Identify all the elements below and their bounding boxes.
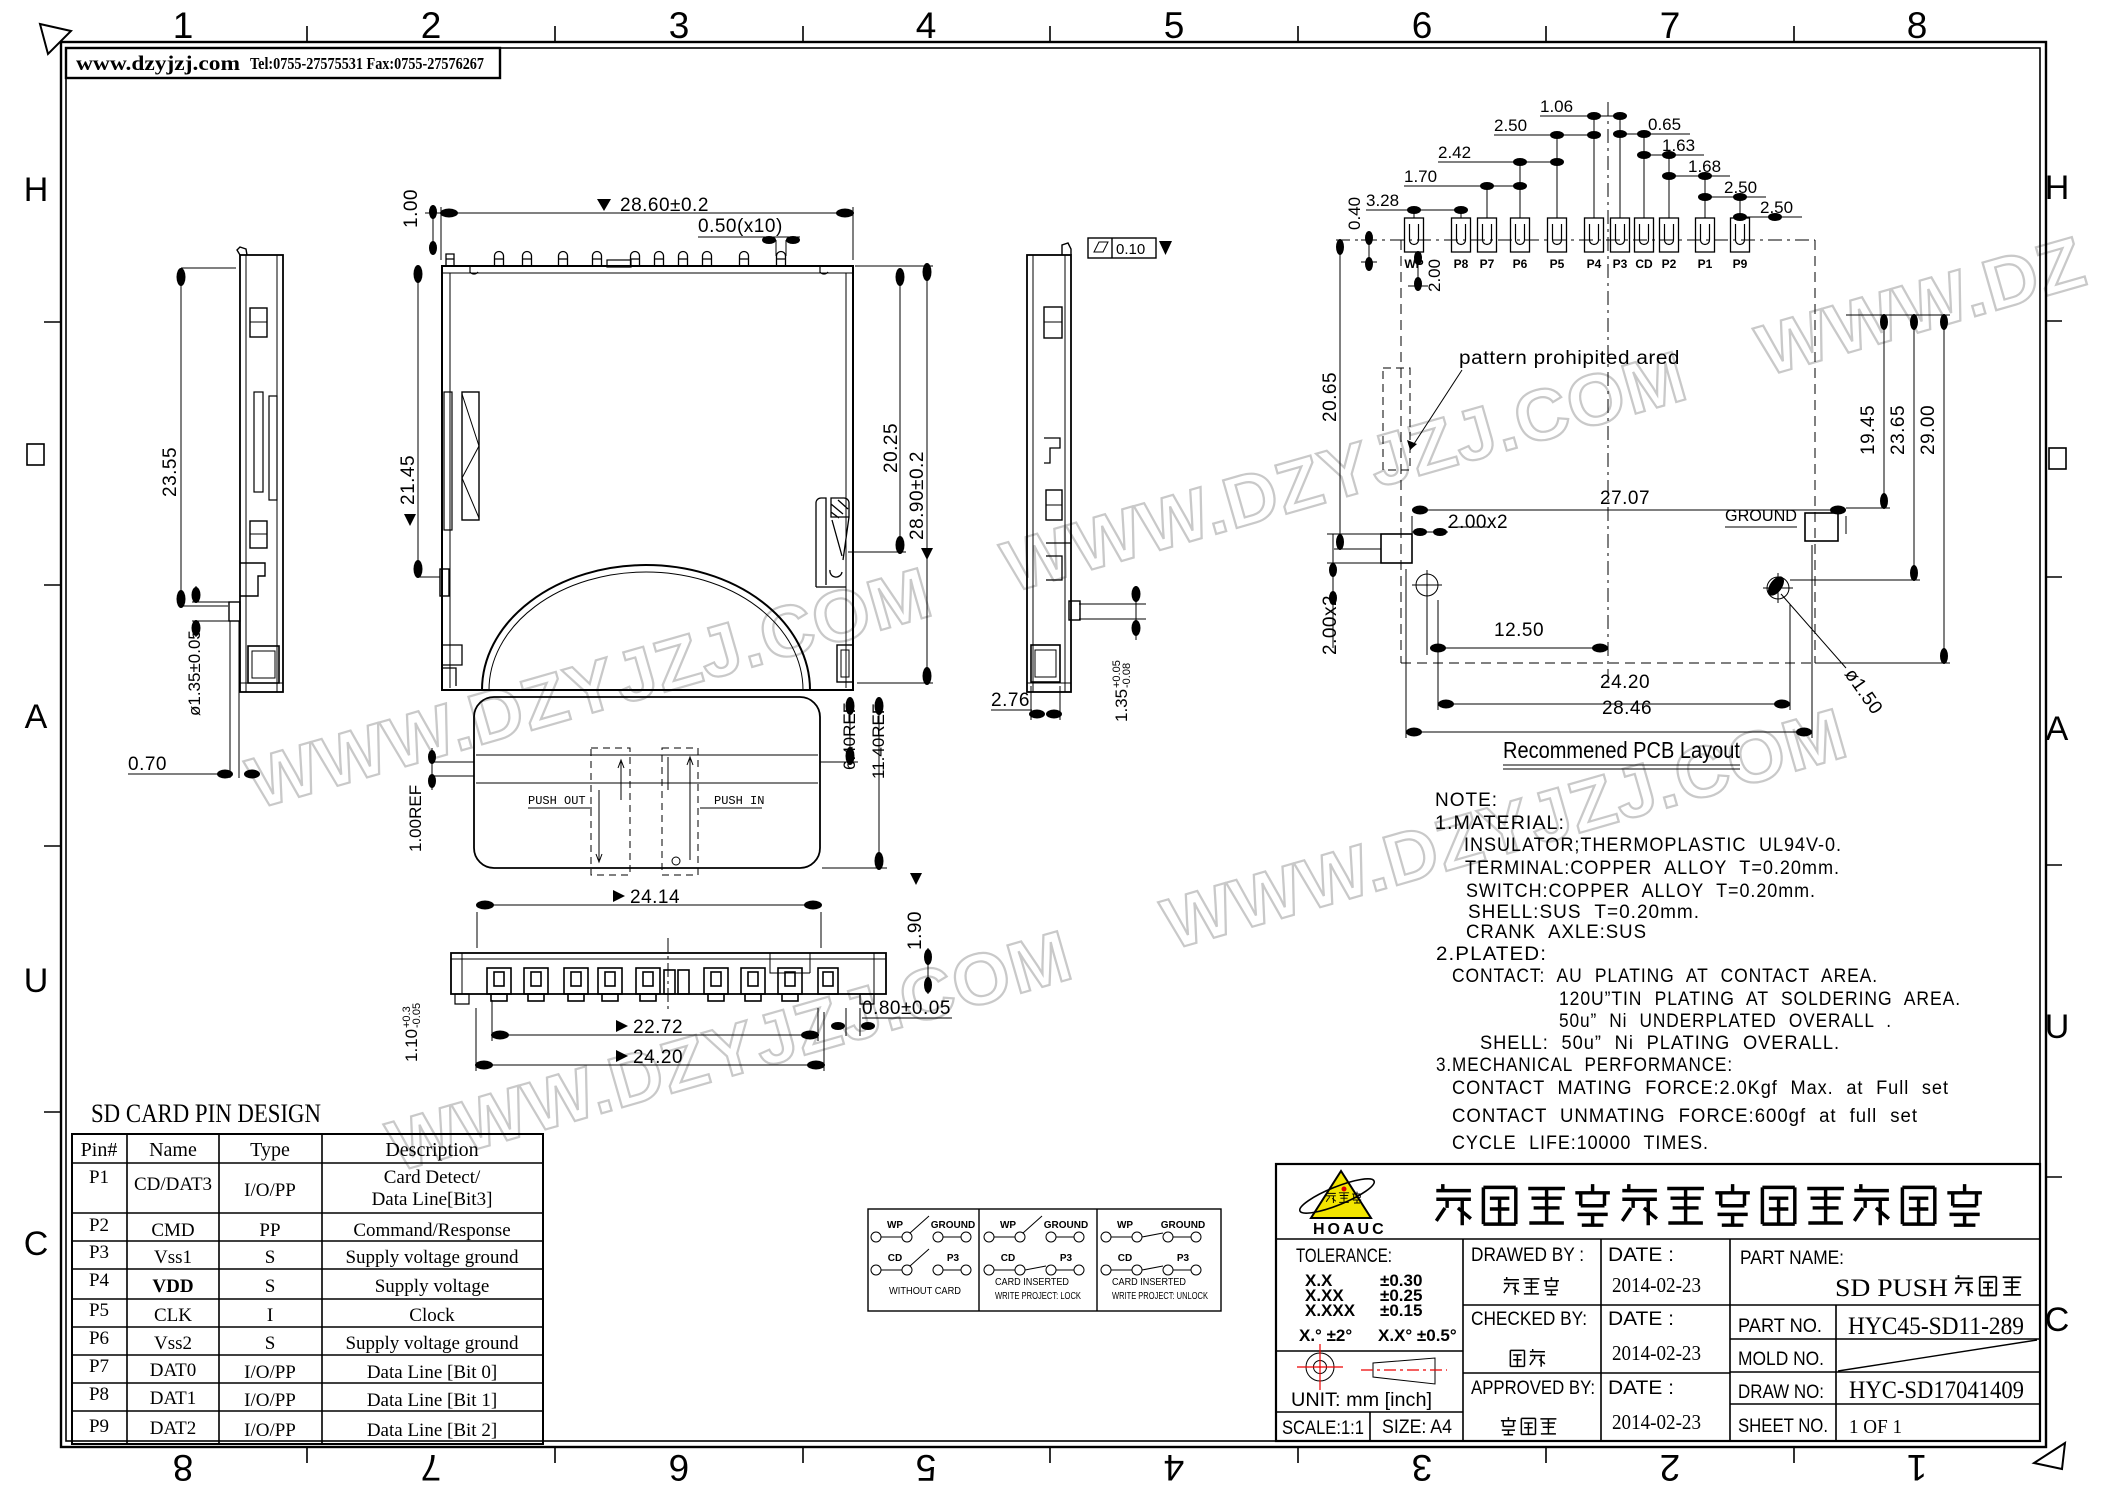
svg-text:H: H [24, 171, 49, 209]
svg-text:HYC45-SD11-289: HYC45-SD11-289 [1848, 1313, 2024, 1340]
svg-text:Data Line [Bit 2]: Data Line [Bit 2] [367, 1420, 497, 1441]
svg-text:CYCLE LIFE:10000 TIMES.: CYCLE LIFE:10000 TIMES. [1452, 1133, 1709, 1154]
svg-text:DATE :: DATE : [1608, 1309, 1674, 1330]
svg-text:Data Line[Bit3]: Data Line[Bit3] [372, 1189, 493, 1210]
svg-text:H: H [2045, 169, 2070, 207]
svg-text:Name: Name [149, 1139, 197, 1161]
svg-text:P3: P3 [1060, 1253, 1073, 1264]
svg-text:1.10: 1.10 [402, 1029, 421, 1062]
svg-text:S: S [265, 1247, 276, 1268]
svg-text:0.70: 0.70 [128, 754, 167, 775]
svg-text:SHEET NO.: SHEET NO. [1738, 1416, 1828, 1437]
svg-text:8: 8 [173, 1447, 194, 1488]
svg-text:CMD: CMD [151, 1220, 194, 1241]
svg-text:PUSH OUT: PUSH OUT [528, 794, 586, 808]
svg-text:8: 8 [1907, 5, 1928, 46]
svg-text:20.25: 20.25 [881, 423, 902, 473]
svg-text:28.46: 28.46 [1602, 698, 1652, 719]
svg-text:P3: P3 [947, 1253, 960, 1264]
svg-text:P7: P7 [1480, 257, 1495, 271]
svg-text:1: 1 [1907, 1447, 1928, 1488]
svg-text:CARD INSERTED: CARD INSERTED [995, 1276, 1069, 1288]
svg-text:P8: P8 [1454, 257, 1469, 271]
svg-text:-0.05: -0.05 [411, 1003, 423, 1028]
svg-text:Data Line [Bit 1]: Data Line [Bit 1] [367, 1390, 497, 1411]
svg-text:pattern prohipited ared: pattern prohipited ared [1459, 348, 1680, 369]
svg-text:-0.08: -0.08 [1121, 663, 1133, 688]
svg-text:X.° ±2°: X.° ±2° [1299, 1326, 1352, 1345]
svg-text:CLK: CLK [154, 1305, 192, 1326]
svg-text:CONTACT: AU PLATING AT CON: CONTACT: AU PLATING AT CONTACT AREA. [1452, 966, 1878, 987]
svg-text:P3: P3 [89, 1242, 109, 1263]
svg-text:C: C [24, 1225, 49, 1263]
svg-text:1.06: 1.06 [1540, 97, 1573, 116]
svg-text:MOLD NO.: MOLD NO. [1738, 1349, 1824, 1370]
svg-text:SCALE:1:1: SCALE:1:1 [1282, 1418, 1364, 1439]
svg-text:I/O/PP: I/O/PP [244, 1362, 296, 1383]
svg-text:2: 2 [421, 5, 442, 46]
svg-text:P1: P1 [89, 1167, 109, 1188]
svg-text:Data Line [Bit 0]: Data Line [Bit 0] [367, 1362, 497, 1383]
svg-text:CD: CD [1118, 1253, 1132, 1264]
svg-text:GROUND: GROUND [1044, 1220, 1088, 1231]
svg-text:SHELL: 50u” Ni PLATING O: SHELL: 50u” Ni PLATING OVERALL. [1480, 1033, 1840, 1054]
svg-text:7: 7 [421, 1447, 442, 1488]
svg-text:P2: P2 [89, 1215, 109, 1236]
svg-text:2014-02-23: 2014-02-23 [1612, 1410, 1701, 1434]
svg-text:3: 3 [669, 5, 690, 46]
svg-text:PART NO.: PART NO. [1738, 1316, 1822, 1337]
svg-text:2.76: 2.76 [991, 690, 1030, 711]
svg-text:2.00x2: 2.00x2 [1448, 512, 1508, 533]
svg-text:A: A [2046, 710, 2069, 748]
svg-text:NOTE:: NOTE: [1435, 790, 1498, 811]
svg-text:WRITE PROJECT: UNLOCK: WRITE PROJECT: UNLOCK [1112, 1290, 1208, 1302]
svg-text:HYC-SD17041409: HYC-SD17041409 [1849, 1377, 2024, 1404]
svg-text:I/O/PP: I/O/PP [244, 1390, 296, 1411]
svg-text:P5: P5 [1550, 257, 1565, 271]
svg-text:HOAUC: HOAUC [1313, 1221, 1387, 1238]
svg-text:C: C [2045, 1301, 2070, 1339]
svg-text:5: 5 [1164, 5, 1185, 46]
svg-text:WP: WP [887, 1220, 903, 1231]
svg-text:6.40REF: 6.40REF [840, 703, 859, 770]
svg-text:U: U [24, 962, 49, 1000]
svg-text:DRAW NO:: DRAW NO: [1738, 1382, 1824, 1403]
svg-text:4: 4 [916, 5, 937, 46]
svg-text:DRAWED BY :: DRAWED BY : [1471, 1245, 1584, 1266]
svg-text:2014-02-23: 2014-02-23 [1612, 1341, 1701, 1365]
svg-text:ø1.35±0.05: ø1.35±0.05 [185, 630, 204, 716]
svg-text:SD CARD PIN DESIGN: SD CARD PIN DESIGN [91, 1099, 321, 1128]
svg-text:DATE :: DATE : [1608, 1378, 1674, 1399]
svg-text:3: 3 [1412, 1447, 1433, 1488]
svg-text:P8: P8 [89, 1384, 109, 1405]
svg-text:X.XXX: X.XXX [1305, 1301, 1356, 1320]
svg-text:2.00: 2.00 [1425, 259, 1444, 292]
svg-text:23.65: 23.65 [1888, 405, 1909, 455]
svg-text:A: A [25, 698, 48, 736]
svg-text:SHELL:SUS T=0.20mm.: SHELL:SUS T=0.20mm. [1468, 902, 1700, 923]
svg-text:S: S [265, 1276, 276, 1297]
svg-text:Card Detect/: Card Detect/ [384, 1167, 481, 1188]
svg-text:7: 7 [1660, 5, 1681, 46]
svg-text:Type: Type [250, 1139, 290, 1161]
svg-text:WP: WP [1117, 1220, 1133, 1231]
svg-text:11.40REF: 11.40REF [869, 704, 888, 779]
svg-text:Description: Description [385, 1139, 478, 1161]
svg-text:1 OF 1: 1 OF 1 [1849, 1416, 1902, 1438]
svg-text:TOLERANCE:: TOLERANCE: [1296, 1246, 1392, 1267]
svg-text:0.40: 0.40 [1345, 197, 1364, 230]
svg-text:SIZE: A4: SIZE: A4 [1382, 1417, 1452, 1438]
svg-text:27.07: 27.07 [1600, 488, 1650, 509]
svg-text:WRITE PROJECT: LOCK: WRITE PROJECT: LOCK [995, 1290, 1081, 1302]
svg-text:APPROVED BY:: APPROVED BY: [1471, 1378, 1595, 1399]
svg-text:50u” Ni UNDERPLATED OVERALL: 50u” Ni UNDERPLATED OVERALL . [1559, 1011, 1892, 1032]
svg-text:WITHOUT CARD: WITHOUT CARD [889, 1285, 961, 1297]
svg-text:1.63: 1.63 [1662, 136, 1695, 155]
svg-text:P9: P9 [1733, 257, 1748, 271]
svg-text:±0.15: ±0.15 [1380, 1301, 1422, 1320]
svg-text:5: 5 [916, 1447, 937, 1488]
svg-text:GROUND: GROUND [1725, 506, 1797, 525]
svg-text:28.90±0.2: 28.90±0.2 [907, 451, 928, 540]
svg-text:PART NAME:: PART NAME: [1740, 1248, 1844, 1269]
svg-text:CD: CD [888, 1253, 902, 1264]
svg-text:1.MATERIAL:: 1.MATERIAL: [1435, 813, 1565, 834]
svg-text:WP: WP [1000, 1220, 1016, 1231]
svg-text:3.28: 3.28 [1366, 191, 1399, 210]
svg-text:P6: P6 [89, 1328, 109, 1349]
svg-text:P3: P3 [1613, 257, 1628, 271]
svg-text:Pin#: Pin# [81, 1139, 118, 1161]
svg-text:DAT0: DAT0 [150, 1360, 196, 1381]
svg-text:23.55: 23.55 [160, 447, 181, 497]
svg-text:1: 1 [173, 5, 194, 46]
svg-text:P7: P7 [89, 1356, 109, 1377]
svg-text:CD/DAT3: CD/DAT3 [134, 1174, 212, 1195]
svg-text:P4: P4 [1587, 257, 1602, 271]
svg-text:6: 6 [669, 1447, 690, 1488]
svg-text:INSULATOR;THERMOPLASTIC UL94V: INSULATOR;THERMOPLASTIC UL94V-0. [1464, 835, 1842, 856]
svg-text:2.50: 2.50 [1494, 116, 1527, 135]
svg-text:U: U [2045, 1008, 2070, 1046]
svg-text:Supply voltage ground: Supply voltage ground [345, 1247, 519, 1268]
svg-text:SD PUSH: SD PUSH [1835, 1275, 1948, 1302]
svg-text:P2: P2 [1662, 257, 1677, 271]
svg-text:1.68: 1.68 [1688, 157, 1721, 176]
svg-text:S: S [265, 1333, 276, 1354]
svg-text:CRANK AXLE:SUS: CRANK AXLE:SUS [1466, 922, 1647, 943]
svg-text:2014-02-23: 2014-02-23 [1612, 1273, 1701, 1297]
svg-text:2.50: 2.50 [1724, 178, 1757, 197]
svg-text:I/O/PP: I/O/PP [244, 1180, 296, 1201]
svg-text:1.70: 1.70 [1404, 167, 1437, 186]
svg-text:2.50: 2.50 [1760, 198, 1793, 217]
svg-text:20.65: 20.65 [1320, 372, 1341, 422]
svg-text:P1: P1 [1698, 257, 1713, 271]
svg-text:1.00: 1.00 [401, 189, 422, 228]
svg-text:24.20: 24.20 [633, 1047, 683, 1068]
svg-text:0.80±0.05: 0.80±0.05 [862, 998, 951, 1019]
svg-text:1.35: 1.35 [1112, 689, 1131, 722]
svg-text:24.20: 24.20 [1600, 672, 1650, 693]
svg-text:0.10: 0.10 [1116, 241, 1145, 258]
svg-text:2.42: 2.42 [1438, 143, 1471, 162]
svg-text:GROUND: GROUND [1161, 1220, 1205, 1231]
svg-text:2: 2 [1660, 1447, 1681, 1488]
svg-text:2.PLATED:: 2.PLATED: [1436, 944, 1547, 965]
svg-text:28.60±0.2: 28.60±0.2 [620, 195, 709, 216]
svg-text:TERMINAL:COPPER ALLOY T=0.20: TERMINAL:COPPER ALLOY T=0.20mm. [1465, 858, 1840, 879]
svg-text:CD: CD [1635, 257, 1653, 271]
svg-text:P6: P6 [1513, 257, 1528, 271]
svg-text:I/O/PP: I/O/PP [244, 1420, 296, 1441]
svg-text:4: 4 [1164, 1447, 1185, 1488]
svg-text:6: 6 [1412, 5, 1433, 46]
svg-text:Recommened PCB Layout: Recommened PCB Layout [1503, 737, 1741, 763]
svg-text:Tel:0755-27575531 Fax:0755-27: Tel:0755-27575531 Fax:0755-27576267 [250, 54, 484, 73]
svg-text:P3: P3 [1177, 1253, 1190, 1264]
svg-text:21.45: 21.45 [398, 455, 419, 505]
svg-text:UNIT: mm [inch]: UNIT: mm [inch] [1291, 1390, 1432, 1411]
svg-text:29.00: 29.00 [1918, 405, 1939, 455]
svg-text:P5: P5 [89, 1300, 109, 1321]
svg-text:CONTACT MATING FORCE:2.0Kgf: CONTACT MATING FORCE:2.0Kgf Max. at Full… [1452, 1078, 1949, 1099]
svg-text:24.14: 24.14 [630, 887, 680, 908]
svg-text:GROUND: GROUND [931, 1220, 975, 1231]
svg-text:SWITCH:COPPER ALLOY T=0.20mm: SWITCH:COPPER ALLOY T=0.20mm. [1466, 881, 1816, 902]
svg-text:12.50: 12.50 [1494, 620, 1544, 641]
svg-text:2.00x2: 2.00x2 [1320, 595, 1341, 655]
svg-text:Clock: Clock [409, 1305, 455, 1326]
svg-text:Vss2: Vss2 [154, 1333, 192, 1354]
svg-text:DAT1: DAT1 [150, 1388, 196, 1409]
svg-text:DATE :: DATE : [1608, 1245, 1674, 1266]
svg-text:CARD INSERTED: CARD INSERTED [1112, 1276, 1186, 1288]
svg-text:PUSH IN: PUSH IN [714, 794, 764, 808]
svg-text:Supply voltage ground: Supply voltage ground [345, 1333, 519, 1354]
svg-text:1.00REF: 1.00REF [406, 785, 425, 852]
svg-text:P9: P9 [89, 1416, 109, 1437]
svg-text:PP: PP [259, 1220, 280, 1241]
svg-text:www.dzyjzj.com: www.dzyjzj.com [76, 51, 241, 75]
svg-text:X.X° ±0.5°: X.X° ±0.5° [1378, 1326, 1457, 1345]
svg-text:Command/Response: Command/Response [353, 1220, 510, 1241]
svg-text:CD: CD [1001, 1253, 1015, 1264]
svg-text:VDD: VDD [152, 1276, 193, 1297]
svg-text:19.45: 19.45 [1858, 405, 1879, 455]
svg-text:0.50(x10): 0.50(x10) [698, 216, 783, 237]
svg-text:P4: P4 [89, 1270, 110, 1291]
svg-text:CHECKED BY:: CHECKED BY: [1471, 1309, 1587, 1330]
svg-text:DAT2: DAT2 [150, 1418, 196, 1439]
svg-text:1.90: 1.90 [905, 911, 926, 950]
svg-text:0.65: 0.65 [1648, 115, 1681, 134]
svg-text:Supply voltage: Supply voltage [375, 1276, 490, 1297]
svg-text:Vss1: Vss1 [154, 1247, 192, 1268]
svg-text:CONTACT UNMATING FORCE:600gf: CONTACT UNMATING FORCE:600gf at full set [1452, 1106, 1918, 1127]
svg-text:I: I [267, 1305, 273, 1326]
svg-text:120U”TIN PLATING AT SOLDERI: 120U”TIN PLATING AT SOLDERING AREA. [1559, 989, 1961, 1010]
svg-text:22.72: 22.72 [633, 1017, 683, 1038]
svg-text:3.MECHANICAL PERFORMANCE:: 3.MECHANICAL PERFORMANCE: [1436, 1055, 1733, 1076]
